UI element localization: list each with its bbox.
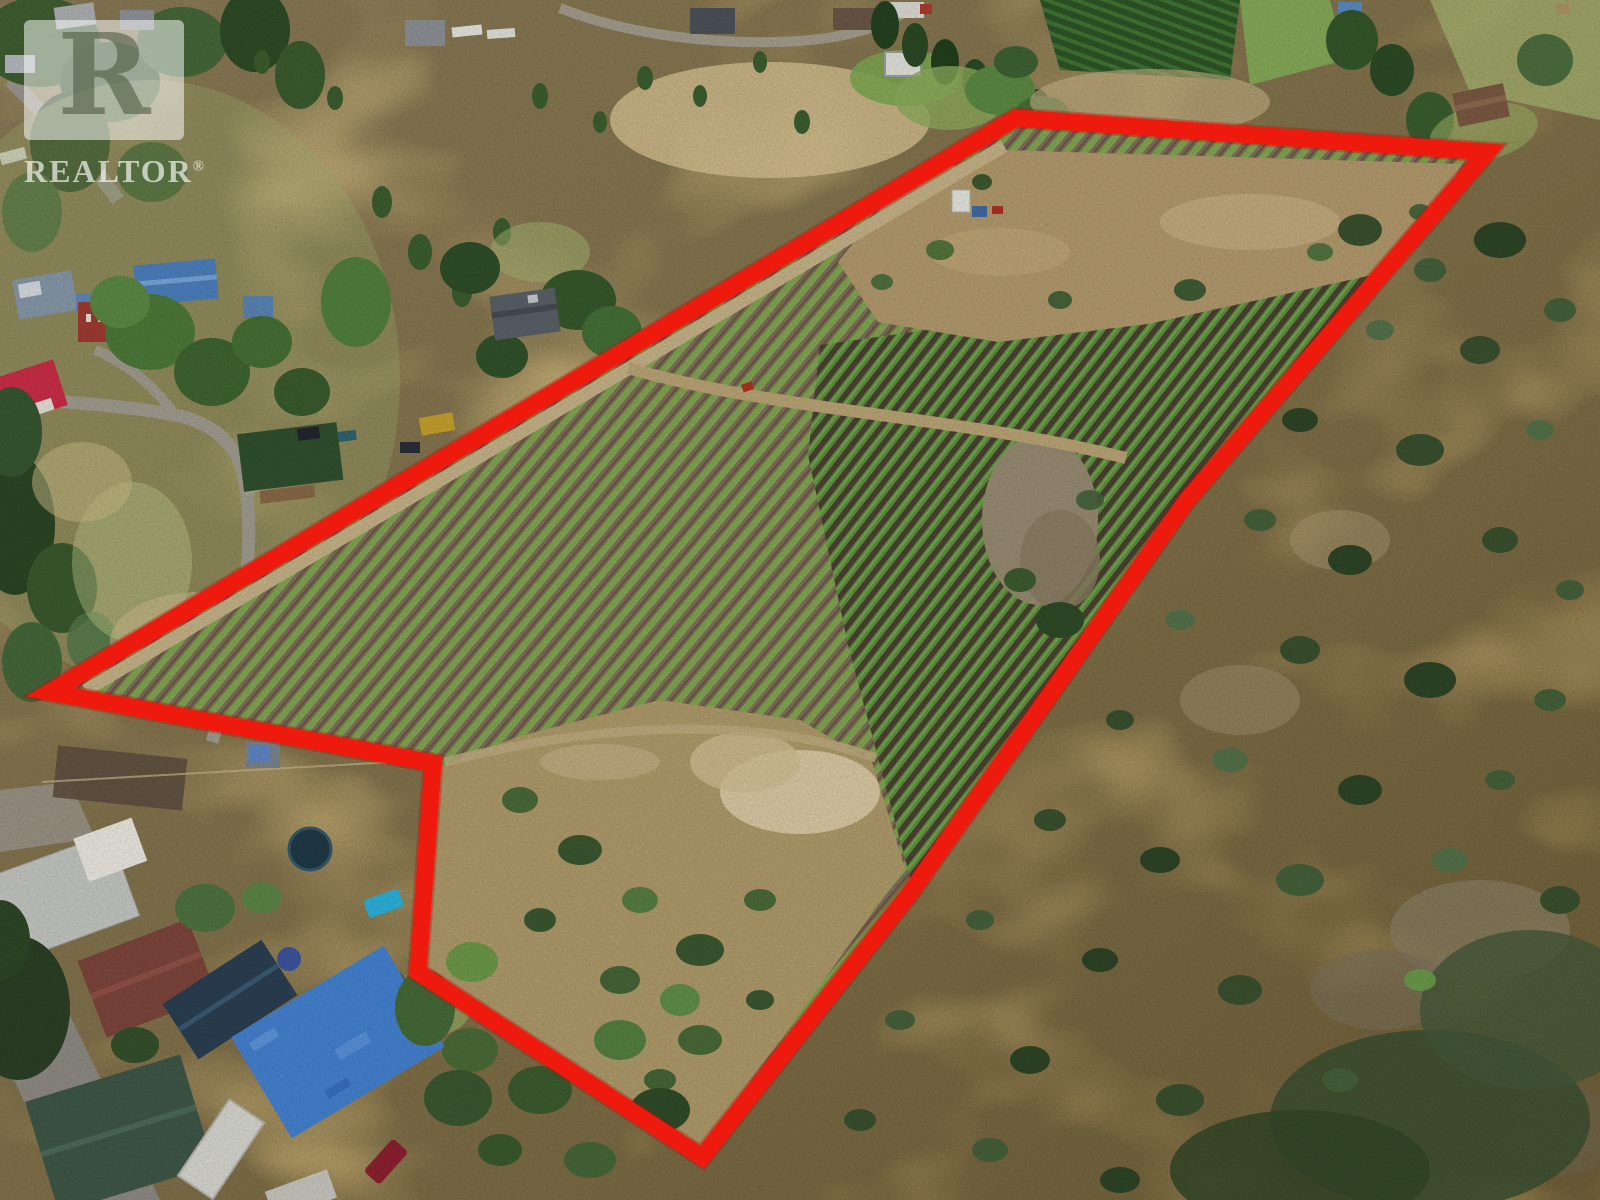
listing-photo: R REALTOR® (0, 0, 1600, 1200)
aerial-photo (0, 0, 1600, 1200)
